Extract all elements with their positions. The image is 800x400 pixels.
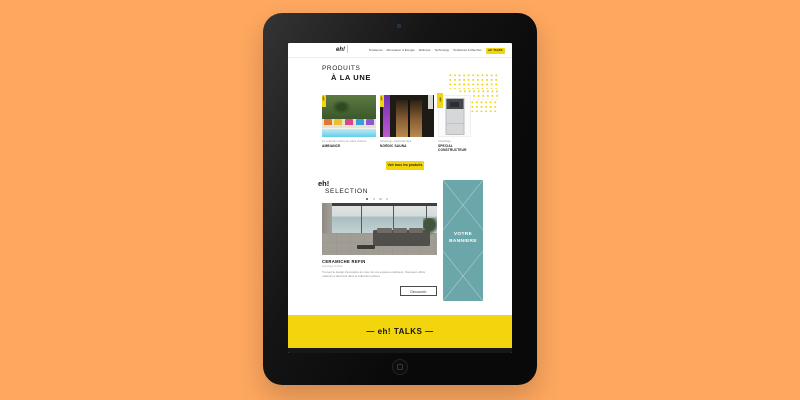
tag-label: eh! (322, 95, 325, 105)
nav-item-technology[interactable]: Technology (434, 49, 449, 52)
carousel-dot[interactable] (366, 198, 368, 200)
product-card-heater[interactable]: eh! Chauffage SPECIAL CONSTRUCTEUR (438, 95, 471, 152)
lounger (366, 119, 374, 125)
selection-image-interior[interactable] (322, 203, 437, 255)
nav-item-renovation-energie[interactable]: Rénovation & Énergie (387, 49, 415, 52)
nav-item-tendances-marches[interactable]: Tendances & Marchés (453, 49, 482, 52)
yellow-tag: eh! (322, 95, 326, 107)
sofa-cushions (377, 228, 423, 233)
carousel-dot[interactable] (373, 198, 375, 200)
yellow-tag: eh! (380, 95, 384, 107)
lounger (345, 119, 353, 125)
product-name: NORDIC SAUNA (380, 144, 434, 148)
sauna-frame (408, 100, 410, 137)
product-card-pool[interactable]: eh! La collection bains de soleil outdoo… (322, 95, 376, 148)
see-all-products-button[interactable]: Voir tous les produits (386, 161, 424, 170)
heater-vent (450, 102, 459, 107)
heater-top-panel (446, 99, 463, 109)
nav-item-wellness[interactable]: Wellness (419, 49, 431, 52)
selection-item-title: CERAMICHE REFIN (322, 259, 366, 264)
heater-seam (446, 123, 463, 124)
products-title-line1: PRODUITS (322, 65, 360, 72)
site-logo[interactable]: eh! (336, 43, 348, 58)
lounger (334, 119, 342, 125)
tag-label: eh! (439, 94, 442, 106)
ad-banner-placeholder[interactable]: VOTRE BANNIERE (443, 180, 483, 301)
front-camera-icon (397, 24, 401, 28)
home-button-square-icon (397, 364, 403, 370)
banner-line2: BANNIERE (443, 239, 483, 246)
heater-unit (445, 98, 464, 135)
discover-button[interactable]: Découvrir (400, 286, 437, 296)
product-image-sauna: eh! (380, 95, 434, 137)
site-header: eh! Tendances Rénovation & Énergie Welln… (288, 43, 512, 58)
eh-talks-band[interactable]: — eh! TALKS — (288, 315, 512, 348)
pool-trees (322, 95, 376, 119)
home-button[interactable] (392, 359, 408, 375)
window-frame (361, 203, 362, 233)
yellow-tag: eh! (437, 93, 443, 108)
product-caption: La collection bains de soleil outdoor AM… (322, 140, 376, 148)
footer-strip (288, 348, 512, 353)
interior-coffee-table (357, 245, 375, 249)
nav-item-tendances[interactable]: Tendances (369, 49, 383, 52)
orange-backdrop: eh! Tendances Rénovation & Énergie Welln… (0, 0, 800, 400)
lounger (324, 119, 332, 125)
carousel-dot[interactable] (386, 198, 388, 200)
product-caption: Chauffage SPECIAL CONSTRUCTEUR (438, 140, 471, 152)
lounger (356, 119, 364, 125)
product-image-pool: eh! (322, 95, 376, 137)
dots-pattern (470, 100, 498, 112)
main-nav: Tendances Rénovation & Énergie Wellness … (369, 43, 505, 58)
pool-water (322, 128, 376, 137)
product-description: Infrarouge Yamazuki Spa (380, 140, 434, 143)
eh-talks-label: — eh! TALKS — (366, 327, 433, 336)
selection-item-subtitle: Carrelage outdoor (322, 265, 343, 268)
selection-title-line2: SELECTION (325, 188, 368, 195)
product-image-heater: eh! (438, 95, 471, 137)
carousel-dot[interactable] (379, 198, 381, 200)
pool-loungers (324, 119, 375, 125)
window-top-bar (322, 203, 437, 206)
products-title-line2: À LA UNE (331, 73, 371, 82)
interior-plant (423, 218, 437, 236)
product-name: SPECIAL CONSTRUCTEUR (438, 144, 471, 152)
tag-label: eh! (380, 95, 383, 105)
selection-title-line1: eh! (318, 179, 329, 188)
carousel-dots (366, 198, 388, 200)
banner-line1: VOTRE (443, 232, 483, 239)
product-caption: Infrarouge Yamazuki Spa NORDIC SAUNA (380, 140, 434, 148)
sauna-light-panel (428, 95, 433, 109)
product-description: La collection bains de soleil outdoor (322, 140, 376, 143)
product-description: Chauffage (438, 140, 471, 143)
logo-divider (347, 45, 348, 53)
banner-text: VOTRE BANNIERE (443, 232, 483, 246)
dots-pattern (448, 73, 498, 89)
product-name: AMBIANCE (322, 144, 376, 148)
product-card-sauna[interactable]: eh! Infrarouge Yamazuki Spa NORDIC SAUNA (380, 95, 434, 148)
tablet-device: eh! Tendances Rénovation & Énergie Welln… (263, 13, 537, 385)
logo-text: eh! (336, 47, 345, 53)
website-screen: eh! Tendances Rénovation & Énergie Welln… (288, 43, 512, 353)
selection-item-description: Trouvez le design d'exception au cœur de… (322, 270, 435, 278)
nav-item-eh-talks[interactable]: eh! TALKS (486, 48, 505, 54)
